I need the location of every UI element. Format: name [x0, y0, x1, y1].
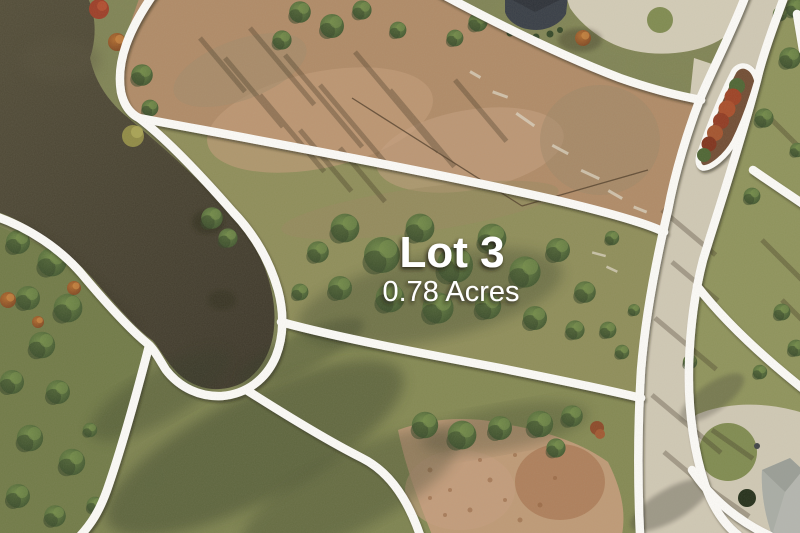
- lot-name-label: Lot 3: [399, 228, 504, 277]
- aerial-lot-map: Lot 3 0.78 Acres: [0, 0, 800, 533]
- aerial-photo: Lot 3 0.78 Acres: [0, 0, 800, 533]
- lot-label-group: Lot 3 0.78 Acres: [382, 228, 519, 308]
- lot-acreage-label: 0.78 Acres: [382, 276, 519, 308]
